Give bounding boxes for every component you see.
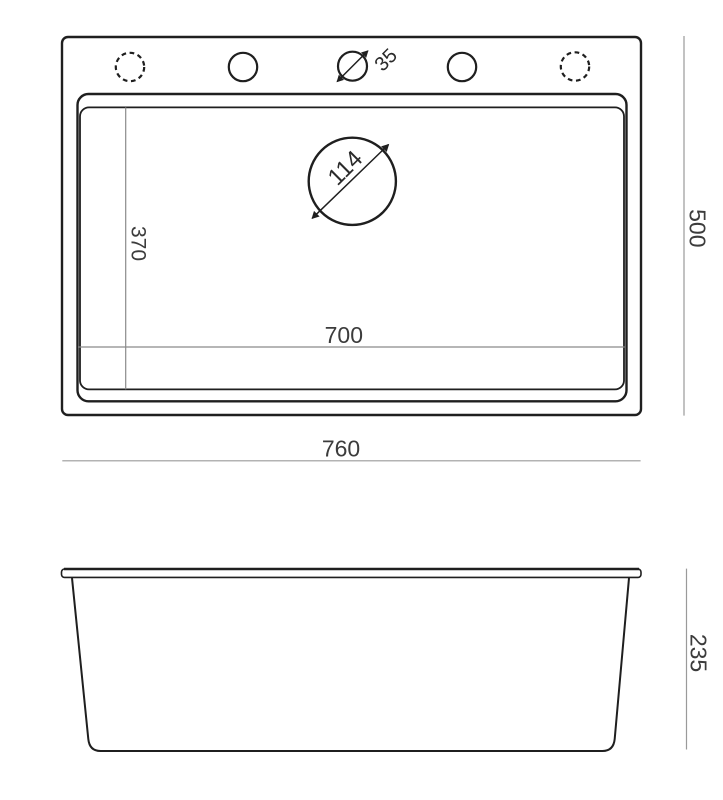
svg-text:760: 760 (322, 436, 360, 462)
svg-text:500: 500 (685, 209, 711, 247)
svg-text:235: 235 (686, 634, 712, 672)
svg-text:370: 370 (127, 226, 150, 261)
svg-text:700: 700 (325, 322, 363, 348)
